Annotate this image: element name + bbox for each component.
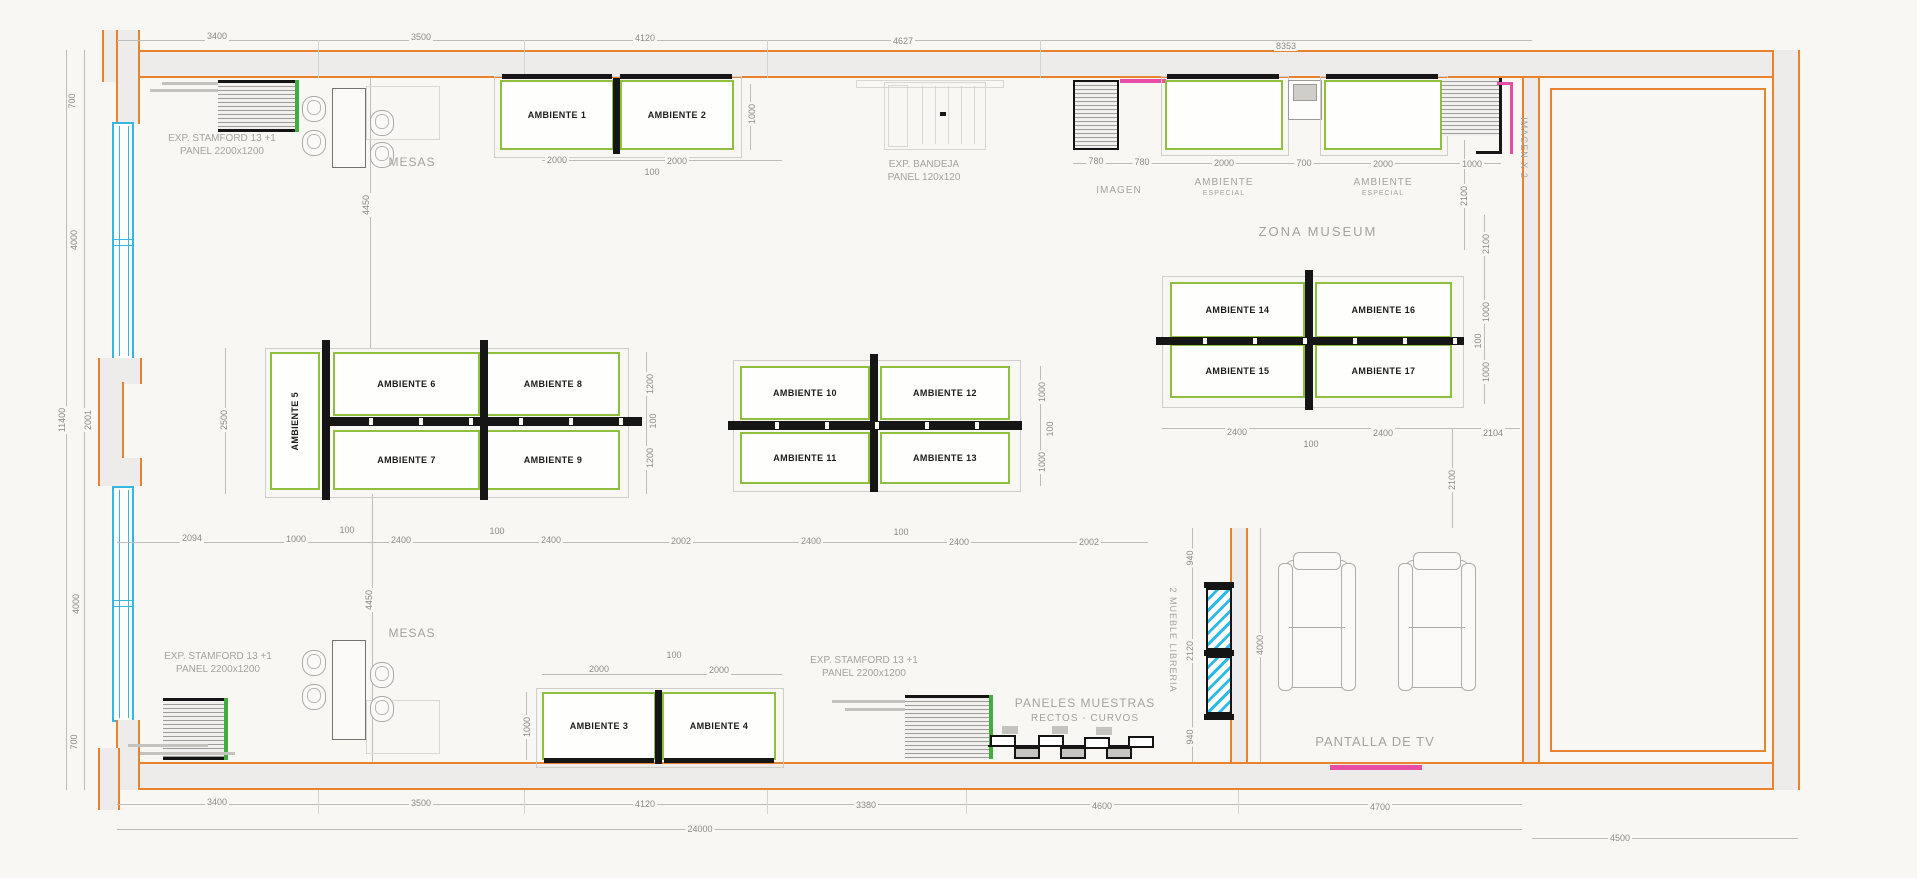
dimension-label: 2002 [669,536,693,546]
dimension-label: 100 [487,526,506,536]
sofa-back [1413,552,1461,570]
imagen-x2-label-line: IMAGEN X 2 [1517,117,1529,179]
ambiente-4-label: AMBIENTE 4 [690,721,749,731]
dimension-label: 2002 [1077,537,1101,547]
ambiente-13-box: AMBIENTE 13 [880,432,1010,484]
pantalla-tv-label: PANTALLA DE TV [1315,734,1435,751]
dimension-label: 3400 [205,797,229,807]
exp-stamford-bottom-left-label: EXP. STAMFORD 13 +1PANEL 2200x1200 [164,650,272,676]
dimension-label: 2400 [1225,427,1249,437]
dimension-label: 1000 [1460,159,1484,169]
dimension-label: 100 [891,527,910,537]
ambiente-13-label: AMBIENTE 13 [913,453,977,463]
exp-stamford-bottom-left-label-line: EXP. STAMFORD 13 +1 [164,650,272,663]
ambiente-12-box: AMBIENTE 12 [880,366,1010,420]
sofa-seam [1409,627,1465,628]
chair-seat [375,114,389,129]
exp-stamford-bottom-right-label-line: PANEL 2200x1200 [810,667,918,680]
dimension-label: 2500 [219,408,229,432]
top-wall [117,50,1800,78]
dimension-label: 8353 [1274,41,1298,51]
floor-plan-canvas: AMBIENTE 1 AMBIENTE 2 AMBIENTE 5 AMBIENT… [0,0,1917,878]
ambiente-8-label: AMBIENTE 8 [524,379,583,389]
dimension-label: 4000 [69,228,79,252]
dimension-label: 100 [1045,419,1055,438]
dimension-label: 2100 [1447,468,1457,492]
left-wall-recess-step-top [98,358,142,384]
dimension-label: 2000 [545,155,569,165]
booth-back-wall [502,74,612,79]
dimension-label: 1200 [645,446,655,470]
ambiente-7-label: AMBIENTE 7 [377,455,436,465]
chair-seat [307,100,321,115]
imagen-panel [1073,80,1119,150]
booth-back-wall [1167,74,1279,79]
cluster-partition-h [728,421,1022,430]
panel-slat [128,744,208,747]
ambiente-especial-2-box [1324,80,1442,150]
sofa [1285,560,1349,688]
muestra-panel [990,735,1016,747]
sofa [1405,560,1469,688]
window-upper [112,122,134,360]
imagen-x2-magenta-line-v [1510,82,1513,154]
dimension-label: 780 [1132,157,1151,167]
dimension-label: 2100 [1481,232,1491,256]
cluster-partition-h [1156,337,1464,345]
ambiente-6-label: AMBIENTE 6 [377,379,436,389]
dimension-label: 2000 [665,156,689,166]
ambiente-12-label: AMBIENTE 12 [913,388,977,398]
dimension-label: 24000 [685,824,714,834]
panel-green-edge [224,698,228,760]
dimension-label: 2001 [83,408,93,432]
museum-right-dividing-wall [1522,78,1540,762]
dimension-label: 3400 [205,31,229,41]
paneles-muestras-label: PANELES MUESTRASRECTOS - CURVOS [1015,696,1155,725]
exp-bandeja-label-line: EXP. BANDEJA [888,158,961,171]
dimension-label: 4120 [633,33,657,43]
ambiente-1-label: AMBIENTE 1 [528,110,587,120]
imagen-panel-right-edge [1499,78,1502,154]
ambiente-especial-2-label-line: AMBIENTE [1353,176,1412,189]
ambiente-10-box: AMBIENTE 10 [740,366,870,420]
chair [302,684,326,710]
ambiente-especial-2-label: AMBIENTEESPECIAL [1353,176,1412,198]
ambiente-especial-1-label-line: AMBIENTE [1194,176,1253,189]
dimension-label: 100 [648,411,658,430]
chair-seat [375,666,389,681]
dimension-label: 700 [69,732,79,751]
muestra-panel [1106,747,1132,759]
exp-stamford-bottom-right-label-line: EXP. STAMFORD 13 +1 [810,654,918,667]
exp-stamford-bottom-left-label-line: PANEL 2200x1200 [164,663,272,676]
dimension-label: 1200 [645,372,655,396]
dimension-label: 2400 [947,537,971,547]
chair [370,110,394,136]
window-lower [112,486,134,722]
dim-line [542,160,782,161]
dimension-label: 700 [67,91,77,110]
magenta-strip-top [1120,79,1166,83]
ambiente-7-box: AMBIENTE 7 [333,430,480,490]
column-fill [1293,84,1317,101]
ambiente-11-label: AMBIENTE 11 [773,453,836,463]
extension-line [524,790,525,814]
muestra-panel [1060,747,1086,759]
chair-seat [307,134,321,149]
dimension-label: 2400 [539,535,563,545]
dimension-label: 4450 [364,588,374,612]
ambiente-5-label: AMBIENTE 5 [290,392,300,451]
libreria-shelf-1 [1206,588,1232,650]
muestra-cap [1002,726,1018,734]
zona-museum-label-line: ZONA MUSEUM [1259,224,1378,241]
dimension-label: 2000 [707,665,731,675]
sofa-seam [1289,627,1345,628]
dimension-label: 2120 [1185,639,1195,663]
dimension-label: 100 [1473,331,1483,350]
dimension-label: 700 [1294,158,1313,168]
tv-screen-strip [1330,765,1422,770]
exp-stamford-bottom-right-label: EXP. STAMFORD 13 +1PANEL 2200x1200 [810,654,918,680]
muestra-panel [1128,736,1154,748]
chair [370,696,394,722]
extension-line [767,40,768,78]
ambiente-14-label: AMBIENTE 14 [1206,305,1270,315]
right-wall [1772,50,1800,790]
ambiente-3-box: AMBIENTE 3 [542,692,656,760]
left-wall-recess-step-bottom [98,458,142,486]
ambiente-9-label: AMBIENTE 9 [524,455,583,465]
chair-seat [307,654,321,669]
imagen-panel-right-bottom [1476,151,1502,154]
cluster-partition-h [322,417,642,426]
ambiente-14-box: AMBIENTE 14 [1170,282,1305,338]
booth-partition [613,78,620,154]
dimension-label: 4700 [1368,802,1392,812]
extension-line [966,790,967,814]
dimension-label: 2100 [1459,184,1469,208]
paneles-muestras-label-line: RECTOS - CURVOS [1015,712,1155,725]
booth-front-wall [544,758,654,763]
dimension-label: 940 [1185,548,1195,567]
dimension-label: 1000 [1481,300,1491,324]
muestra-panel [1014,747,1040,759]
imagen-panel-right [1442,78,1501,136]
chair-seat [375,700,389,715]
dimension-label: 4600 [1090,801,1114,811]
dim-line [117,542,1148,543]
dim-line [542,674,782,675]
left-wall-bottom-stub [98,748,120,810]
extension-line [524,40,525,78]
column-box [1288,80,1322,120]
ambiente-8-box: AMBIENTE 8 [486,352,620,416]
mesas-top-label: MESAS [388,155,435,171]
ambiente-especial-1-label-line: ESPECIAL [1194,189,1253,198]
mueble-libreria-label: 2 MUEBLE LIBRERIA [1166,587,1178,692]
ambiente-10-label: AMBIENTE 10 [773,388,837,398]
dim-line [117,804,1522,805]
ambiente-especial-1-label: AMBIENTEESPECIAL [1194,176,1253,198]
zona-museum-label: ZONA MUSEUM [1259,224,1378,241]
dimension-label: 4450 [361,193,371,217]
ambiente-17-box: AMBIENTE 17 [1315,344,1452,398]
bottom-wall [117,762,1800,790]
dim-line [1532,838,1798,839]
dimension-label: 4000 [71,592,81,616]
dimension-label: 100 [664,650,683,660]
dimension-label: 1000 [522,715,532,739]
dimension-label: 2400 [1371,428,1395,438]
dimension-label: 11400 [57,406,67,434]
booth-partition [655,690,662,764]
panel-green-edge [989,695,993,759]
ambiente-11-box: AMBIENTE 11 [740,432,870,484]
tv-room-stub-wall [1230,528,1248,762]
dimension-label: 2400 [799,536,823,546]
chair [302,130,326,156]
window-transom [114,239,132,246]
dimension-label: 3380 [854,800,878,810]
mesas-bottom-label-line: MESAS [388,626,435,642]
panel-slat [140,752,235,755]
muestra-cap [1052,726,1068,734]
exp-stamford-panel-top-left [218,80,298,132]
ambiente-16-label: AMBIENTE 16 [1352,305,1416,315]
sofa-back [1293,552,1341,570]
ambiente-15-box: AMBIENTE 15 [1170,344,1305,398]
dimension-label: 3500 [409,798,433,808]
chair-seat [307,688,321,703]
dimension-label: 2000 [587,664,611,674]
dimension-label: 2400 [389,535,413,545]
ambiente-4-box: AMBIENTE 4 [662,692,776,760]
dimension-label: 100 [1301,439,1320,449]
dimension-label: 1000 [1037,450,1047,474]
shelf-cap [1204,714,1234,720]
libreria-shelf-2 [1206,656,1232,714]
ambiente-especial-2-label-line: ESPECIAL [1353,189,1412,198]
dimension-label: 1000 [284,534,308,544]
meeting-table-top [332,88,366,168]
dim-line [1162,428,1520,429]
dimension-label: 2094 [180,533,204,543]
dimension-label: 1000 [1481,360,1491,384]
ambiente-5-box: AMBIENTE 5 [270,352,320,490]
ambiente-2-label: AMBIENTE 2 [648,110,707,120]
ambiente-especial-1-box [1165,80,1283,150]
chair [370,662,394,688]
dimension-label: 4500 [1608,833,1632,843]
left-wall-segment-top [116,30,140,124]
exp-stamford-panel-bottom-right [905,695,991,759]
exp-stamford-top-left-label: EXP. STAMFORD 13 +1PANEL 2200x1200 [168,132,276,158]
chair [302,96,326,122]
ambiente-16-box: AMBIENTE 16 [1315,282,1452,338]
dimension-label: 2000 [1212,158,1236,168]
extension-line [1238,790,1239,814]
dimension-label: 4000 [1255,633,1265,657]
extension-line [767,790,768,814]
ambiente-9-box: AMBIENTE 9 [486,430,620,490]
extension-line [1040,40,1041,78]
exp-bandeja-door [888,85,908,147]
paneles-muestras-label-line: PANELES MUESTRAS [1015,696,1155,712]
imagen-label-line: IMAGEN [1096,184,1141,197]
exp-stamford-panel-bottom-left [163,698,225,760]
ambiente-17-label: AMBIENTE 17 [1352,366,1416,376]
dim-line [117,40,1532,41]
ambiente-15-label: AMBIENTE 15 [1206,366,1270,376]
booth-front-wall [664,758,774,763]
exp-bandeja-label: EXP. BANDEJAPANEL 120x120 [888,158,961,184]
mesas-top-label-line: MESAS [388,155,435,171]
exp-stamford-top-left-label-line: EXP. STAMFORD 13 +1 [168,132,276,145]
dimension-label: 1000 [747,102,757,126]
dim-line [117,829,1522,830]
imagen-x2-label: IMAGEN X 2 [1517,117,1529,179]
muestra-cap [1096,727,1112,735]
dimension-label: 1000 [1037,380,1047,404]
ambiente-1-box: AMBIENTE 1 [500,80,614,150]
dimension-label: 3500 [409,32,433,42]
panel-green-edge [295,80,299,132]
extension-line [318,790,319,814]
window-transom [114,600,132,607]
dimension-label: 100 [642,167,661,177]
dimension-label: 2104 [1481,428,1505,438]
chair [302,650,326,676]
muestra-panel [1038,735,1064,747]
dimension-label: 780 [1086,156,1105,166]
ambiente-6-box: AMBIENTE 6 [333,352,480,416]
mesas-bottom-label: MESAS [388,626,435,642]
imagen-label: IMAGEN [1096,184,1141,197]
extension-line [318,40,319,78]
dimension-label: 4627 [891,36,915,46]
pantalla-tv-label-line: PANTALLA DE TV [1315,734,1435,751]
right-room-inner-outline [1550,88,1766,752]
exp-stamford-top-left-label-line: PANEL 2200x1200 [168,145,276,158]
dimension-label: 4120 [633,799,657,809]
exp-bandeja-label-line: PANEL 120x120 [888,171,961,184]
ambiente-2-box: AMBIENTE 2 [620,80,734,150]
mueble-libreria-label-line: 2 MUEBLE LIBRERIA [1166,587,1178,692]
ambiente-3-label: AMBIENTE 3 [570,721,629,731]
exp-bandeja-dot [940,112,946,116]
left-wall-recess-band [98,382,124,462]
dimension-label: 940 [1185,727,1195,746]
meeting-table-bottom [332,640,366,740]
chair-seat [375,146,389,161]
booth-back-wall [620,74,732,79]
booth-back-wall [1326,74,1438,79]
dimension-label: 2000 [1371,159,1395,169]
dimension-label: 100 [337,525,356,535]
